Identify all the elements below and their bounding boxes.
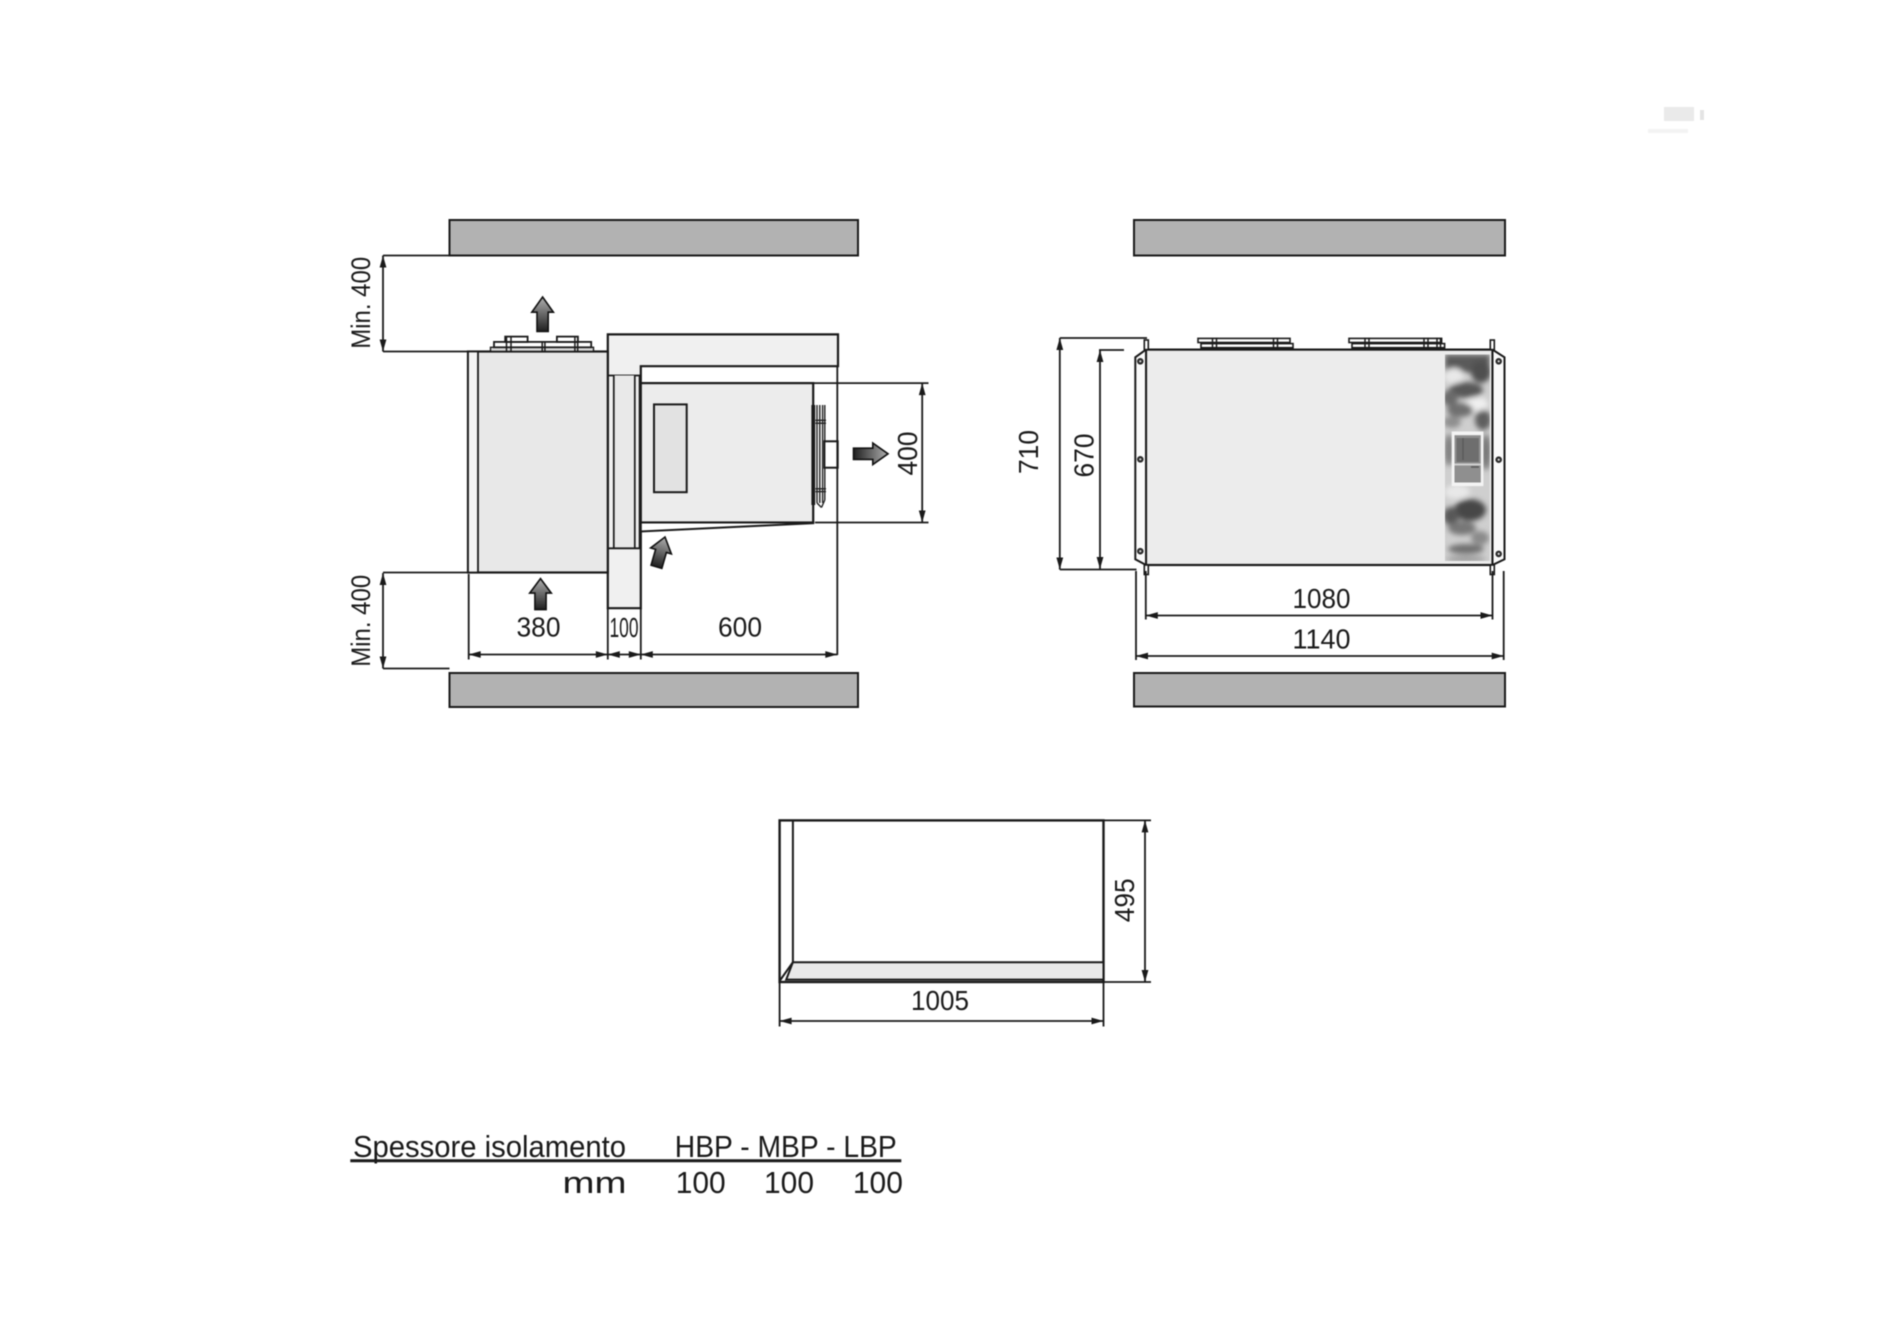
svg-text:380: 380 xyxy=(517,612,561,643)
svg-text:495: 495 xyxy=(1109,878,1140,922)
svg-text:1140: 1140 xyxy=(1293,624,1351,655)
svg-text:100: 100 xyxy=(764,1165,814,1200)
svg-text:1005: 1005 xyxy=(911,985,969,1016)
svg-text:HBP - MBP - LBP: HBP - MBP - LBP xyxy=(675,1129,897,1164)
svg-text:670: 670 xyxy=(1069,434,1100,478)
svg-text:Spessore isolamento: Spessore isolamento xyxy=(353,1129,626,1164)
svg-text:100: 100 xyxy=(610,612,639,643)
svg-text:100: 100 xyxy=(853,1165,903,1200)
svg-text:1080: 1080 xyxy=(1293,583,1351,614)
svg-text:600: 600 xyxy=(718,612,762,643)
svg-text:mm: mm xyxy=(563,1165,627,1200)
svg-text:710: 710 xyxy=(1013,430,1044,474)
svg-text:Min. 400: Min. 400 xyxy=(346,575,376,667)
svg-text:400: 400 xyxy=(892,432,923,476)
svg-text:Min. 400: Min. 400 xyxy=(346,257,376,349)
svg-text:100: 100 xyxy=(676,1165,726,1200)
